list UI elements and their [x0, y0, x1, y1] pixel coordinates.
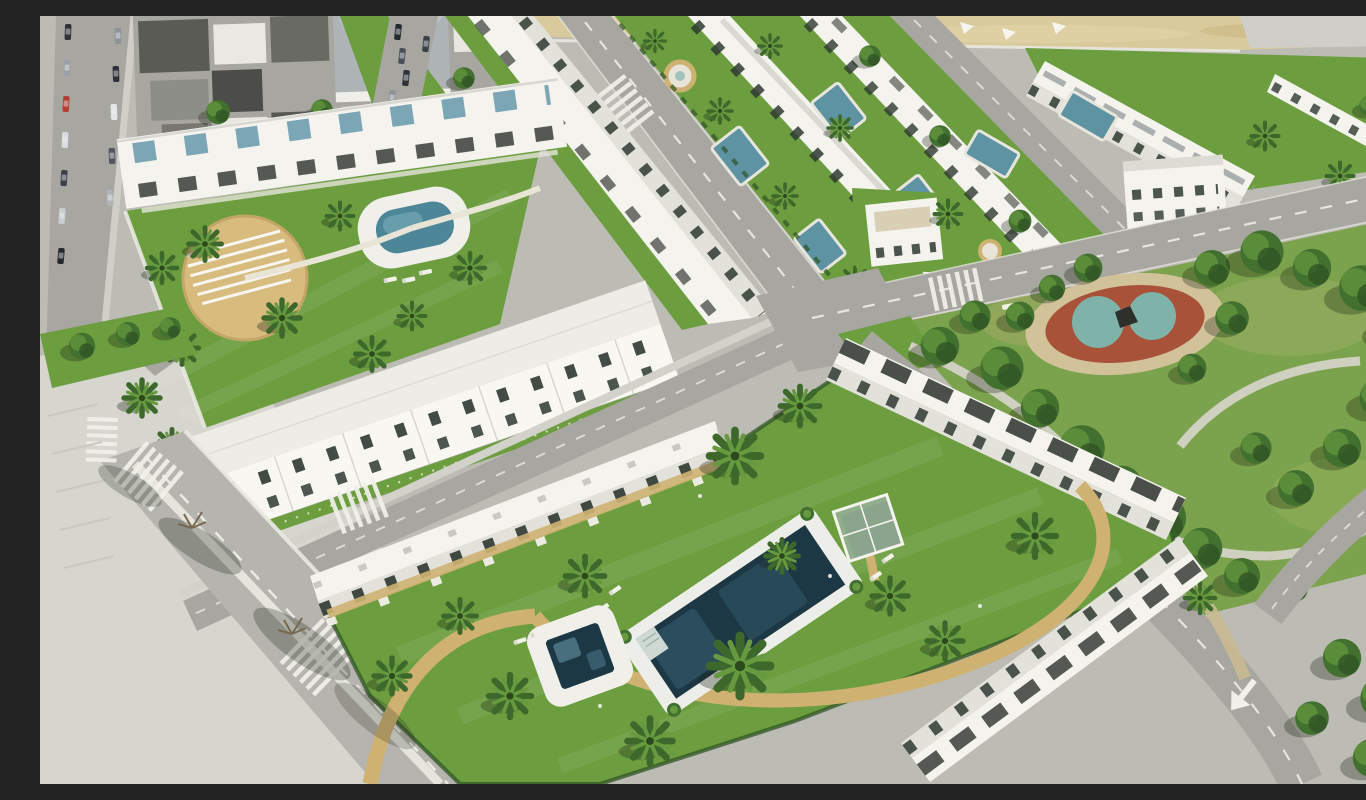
render-canvas — [40, 16, 1366, 784]
top-right-road — [1240, 16, 1366, 48]
detached-villa — [852, 188, 963, 274]
aerial-render — [40, 16, 1366, 784]
